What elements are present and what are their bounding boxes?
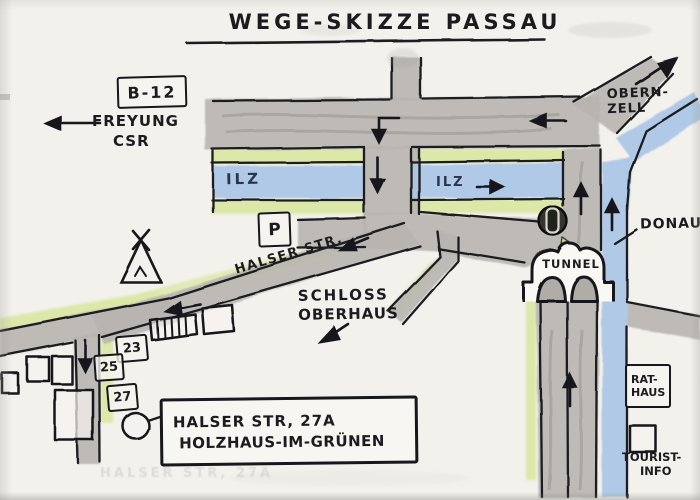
- title-underline: [187, 39, 544, 43]
- rathaus-box: RAT- HAUS: [625, 364, 671, 408]
- freyung-label: FREYUNG: [92, 112, 179, 130]
- route-number-sign: B-12: [117, 75, 188, 109]
- traffic-light-icon: [539, 207, 567, 235]
- tourist-line2: INFO: [640, 464, 681, 478]
- bleed-through-ghost-text: HALSER STR, 27A: [100, 466, 273, 481]
- schloss-line1: SCHLOSS: [298, 285, 399, 305]
- texture-stroke: [580, 330, 582, 490]
- house-25: 25: [93, 353, 125, 382]
- map-title: WEGE-SKIZZE PASSAU: [205, 10, 585, 34]
- map-sketch-passau: WEGE-SKIZZE PASSAU B-12 FREYUNG CSR OBER…: [0, 0, 700, 500]
- house-27-number: 27: [113, 389, 132, 406]
- right-bank-road: [627, 302, 700, 340]
- address-line2: HOLZHAUS-IM-GRÜNEN: [179, 431, 385, 452]
- tourist-info-building: [630, 426, 656, 452]
- building-box: [27, 357, 49, 381]
- tourist-info-label: TOURIST- INFO: [622, 450, 681, 478]
- edge-mark: [0, 94, 10, 100]
- building-box: [55, 390, 93, 440]
- rathaus-line1: RAT-: [631, 373, 658, 386]
- texture-stroke: [549, 330, 552, 490]
- house-23-number: 23: [122, 340, 141, 357]
- rathaus-line2: HAUS: [631, 386, 665, 399]
- parking-label: P: [268, 219, 281, 239]
- arrow-schloss-oberhaus: [321, 324, 348, 342]
- building-box: [52, 356, 72, 384]
- donau-river-label: DONAU: [640, 215, 700, 232]
- destination-address-box: HALSER STR, 27A HOLZHAUS-IM-GRÜNEN: [160, 395, 419, 466]
- csr-label: CSR: [113, 132, 150, 150]
- schloss-oberhaus-label: SCHLOSS OBERHAUS: [298, 285, 399, 324]
- parking-sign: P: [257, 211, 291, 247]
- ilz-river-label-left: ILZ: [226, 170, 261, 189]
- ilz-river-label-right: ILZ: [436, 175, 465, 190]
- obernzell-line1: OBERN-: [606, 85, 669, 102]
- obernzell-line2: ZELL: [607, 100, 670, 117]
- obernzell-label: OBERN- ZELL: [606, 85, 669, 117]
- address-line1: HALSER STR, 27A: [173, 411, 336, 431]
- ilz-river-right: [412, 163, 564, 198]
- verge-tunnel-road: [526, 300, 536, 480]
- campsite-icon: [121, 230, 161, 282]
- house-25-number: 25: [99, 359, 118, 375]
- building-box: [2, 373, 18, 393]
- verge-ilz-right-bottom: [412, 199, 564, 213]
- route-number-label: B-12: [127, 82, 177, 102]
- location-marker-icon: [123, 413, 149, 439]
- house-27: 27: [106, 383, 139, 413]
- tunnel-label: TUNNEL: [534, 257, 608, 271]
- tourist-line1: TOURIST-: [622, 450, 681, 464]
- schloss-line2: OBERHAUS: [298, 304, 399, 324]
- building-box: [202, 305, 234, 334]
